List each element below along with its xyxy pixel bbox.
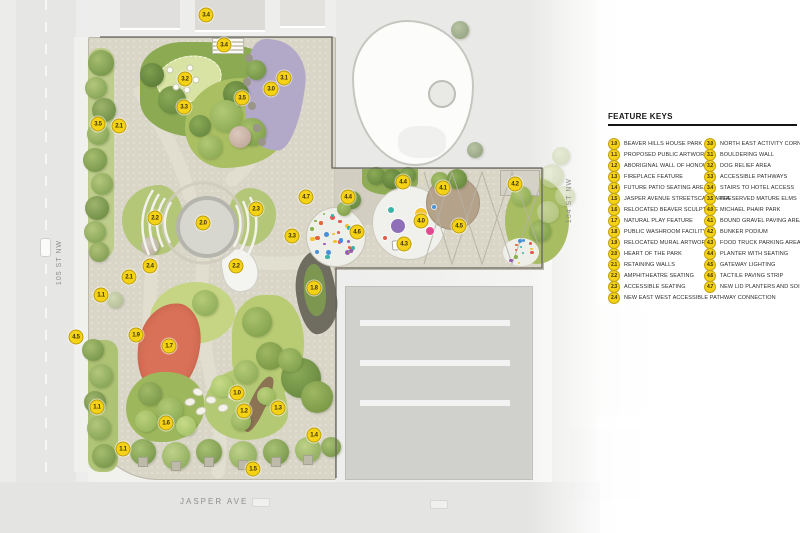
feature-marker-3.3: 3.3 (285, 229, 300, 244)
legend-item-label: FIREPLACE FEATURE (624, 174, 683, 180)
legend-rule (608, 124, 797, 126)
legend-item-label: RELOCATED MURAL ARTWORK (624, 240, 709, 246)
legend-title: FEATURE KEYS (608, 112, 797, 121)
legend-item: 4.5 GATEWAY LIGHTING (704, 259, 800, 270)
feature-marker-4.7: 4.7 (299, 190, 314, 205)
feature-marker-4.0: 4.0 (414, 214, 429, 229)
legend-item-label: PLANTER WITH SEATING (720, 251, 788, 257)
legend-item-label: HEART OF THE PARK (624, 251, 682, 257)
legend-key-badge: 2.3 (608, 281, 620, 293)
legend-item-label: NORTH EAST ACTIVITY CORNER (720, 141, 800, 147)
legend-item: 4.0 MICHAEL PHAIR PARK (704, 204, 800, 215)
legend-item-label: BUNKER PODIUM (720, 229, 768, 235)
legend-item: 3.5 PRESERVED MATURE ELMS (704, 193, 800, 204)
feature-marker-2.2: 2.2 (148, 211, 163, 226)
feature-marker-3.3: 3.3 (177, 100, 192, 115)
legend-key-badge: 1.5 (608, 193, 620, 205)
legend-key-badge: 1.1 (608, 149, 620, 161)
feature-marker-1.7: 1.7 (162, 339, 177, 354)
legend-item: 2.4 NEW EAST WEST ACCESSIBLE PATHWAY CON… (608, 292, 776, 303)
legend-item-label: BOUND GRAVEL PAVING AREA (720, 218, 800, 224)
legend-key-badge: 4.2 (704, 226, 716, 238)
feature-marker-1.8: 1.8 (307, 281, 322, 296)
feature-marker-1.5: 1.5 (246, 462, 261, 477)
legend-item-label: PROPOSED PUBLIC ARTWORK (624, 152, 708, 158)
feature-marker-3.1: 3.1 (277, 71, 292, 86)
legend-item: 3.2 DOG RELIEF AREA (704, 160, 800, 171)
legend-key-badge: 3.5 (704, 193, 716, 205)
legend-item-label: FOOD TRUCK PARKING AREA (720, 240, 800, 246)
legend-item: 4.6 TACTILE PAVING STRIP (704, 270, 800, 281)
feature-marker-1.0: 1.0 (230, 386, 245, 401)
legend-item-label: GATEWAY LIGHTING (720, 262, 776, 268)
legend-key-badge: 2.0 (608, 248, 620, 260)
legend-item-label: BEAVER HILLS HOUSE PARK (624, 141, 702, 147)
legend-key-badge: 3.1 (704, 149, 716, 161)
legend-item-label: DOG RELIEF AREA (720, 163, 771, 169)
feature-marker-3.4: 3.4 (199, 8, 214, 23)
feature-marker-3.5: 3.5 (235, 91, 250, 106)
feature-marker-1.3: 1.3 (271, 401, 286, 416)
feature-marker-3.0: 3.0 (264, 82, 279, 97)
legend-item-label: PUBLIC WASHROOM FACILITY (624, 229, 707, 235)
legend-key-badge: 4.5 (704, 259, 716, 271)
legend-item-label: PRESERVED MATURE ELMS (720, 196, 797, 202)
legend-item: 4.2 BUNKER PODIUM (704, 226, 800, 237)
feature-marker-3.4: 3.4 (217, 38, 232, 53)
legend-item-label: RETAINING WALLS (624, 262, 675, 268)
feature-marker-1.6: 1.6 (159, 416, 174, 431)
legend-key-badge: 4.7 (704, 281, 716, 293)
feature-marker-1.2: 1.2 (237, 404, 252, 419)
legend-key-badge: 3.3 (704, 171, 716, 183)
feature-marker-1.4: 1.4 (307, 428, 322, 443)
legend-key-badge: 3.2 (704, 160, 716, 172)
legend-item-label: BOULDERING WALL (720, 152, 774, 158)
feature-marker-4.2: 4.2 (508, 177, 523, 192)
legend-item-label: ABORIGINAL WALL OF HONOUR (624, 163, 711, 169)
legend-key-badge: 1.2 (608, 160, 620, 172)
legend-item-label: TACTILE PAVING STRIP (720, 273, 783, 279)
legend-key-badge: 4.4 (704, 248, 716, 260)
feature-marker-2.1: 2.1 (112, 119, 127, 134)
feature-marker-2.0: 2.0 (196, 216, 211, 231)
feature-marker-4.6: 4.6 (350, 225, 365, 240)
feature-marker-1.9: 1.9 (129, 328, 144, 343)
feature-marker-4.1: 4.1 (436, 181, 451, 196)
feature-keys-legend: FEATURE KEYS 1.0 BEAVER HILLS HOUSE PARK… (608, 112, 797, 134)
legend-item-label: FUTURE PATIO SEATING AREA (624, 185, 707, 191)
feature-marker-2.2: 2.2 (229, 259, 244, 274)
legend-item: 3.4 STAIRS TO HOTEL ACCESS (704, 182, 800, 193)
feature-marker-2.1: 2.1 (122, 270, 137, 285)
legend-key-badge: 1.7 (608, 215, 620, 227)
feature-marker-2.4: 2.4 (143, 259, 158, 274)
feature-marker-4.5: 4.5 (452, 219, 467, 234)
legend-item-label: AMPHITHEATRE SEATING (624, 273, 694, 279)
legend-key-badge: 2.4 (608, 292, 620, 304)
legend-key-badge: 4.1 (704, 215, 716, 227)
legend-column-2: 3.0 NORTH EAST ACTIVITY CORNER 3.1 BOULD… (704, 138, 800, 292)
legend-key-badge: 4.3 (704, 237, 716, 249)
feature-marker-4.3: 4.3 (397, 237, 412, 252)
legend-key-badge: 1.4 (608, 182, 620, 194)
legend-item: 4.7 NEW LID PLANTERS AND SOIL CELLS (704, 281, 800, 292)
legend-key-badge: 3.4 (704, 182, 716, 194)
legend-item: 4.1 BOUND GRAVEL PAVING AREA (704, 215, 800, 226)
legend-item: 3.0 NORTH EAST ACTIVITY CORNER (704, 138, 800, 149)
legend-key-badge: 3.0 (704, 138, 716, 150)
legend-key-badge: 4.0 (704, 204, 716, 216)
legend-key-badge: 1.6 (608, 204, 620, 216)
legend-item: 4.3 FOOD TRUCK PARKING AREA (704, 237, 800, 248)
feature-marker-2.3: 2.3 (249, 202, 264, 217)
legend-key-badge: 1.9 (608, 237, 620, 249)
legend-key-badge: 1.0 (608, 138, 620, 150)
feature-marker-3.2: 3.2 (178, 72, 193, 87)
legend-item-label: STAIRS TO HOTEL ACCESS (720, 185, 794, 191)
legend-item: 3.3 ACCESSIBLE PATHWAYS (704, 171, 800, 182)
legend-item-label: ACCESSIBLE SEATING (624, 284, 686, 290)
legend-key-badge: 2.1 (608, 259, 620, 271)
legend-key-badge: 2.2 (608, 270, 620, 282)
legend-key-badge: 1.8 (608, 226, 620, 238)
feature-marker-4.5: 4.5 (69, 330, 84, 345)
legend-item: 3.1 BOULDERING WALL (704, 149, 800, 160)
legend-item-label: NEW LID PLANTERS AND SOIL CELLS (720, 284, 800, 290)
legend-key-badge: 1.3 (608, 171, 620, 183)
legend-item-label: NATURAL PLAY FEATURE (624, 218, 693, 224)
legend-item: 4.4 PLANTER WITH SEATING (704, 248, 800, 259)
legend-item-label: NEW EAST WEST ACCESSIBLE PATHWAY CONNECT… (624, 295, 776, 301)
feature-marker-1.1: 1.1 (90, 400, 105, 415)
legend-key-badge: 4.6 (704, 270, 716, 282)
feature-marker-1.1: 1.1 (94, 288, 109, 303)
site-plan-canvas: 3.43.43.23.13.03.53.33.52.12.22.02.32.22… (0, 0, 800, 533)
feature-marker-4.4: 4.4 (341, 190, 356, 205)
legend-item-label: ACCESSIBLE PATHWAYS (720, 174, 787, 180)
feature-marker-1.1: 1.1 (116, 442, 131, 457)
legend-item-label: MICHAEL PHAIR PARK (720, 207, 780, 213)
feature-marker-3.5: 3.5 (91, 117, 106, 132)
feature-marker-4.4: 4.4 (396, 175, 411, 190)
